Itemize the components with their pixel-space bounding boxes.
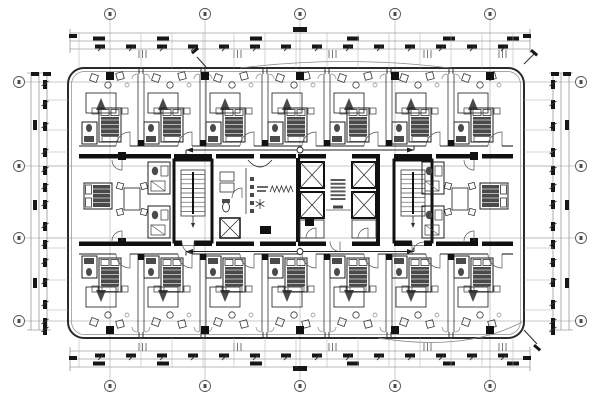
pillow (111, 110, 119, 116)
stair-arrow-head (191, 223, 195, 228)
dimension-text-blob (343, 45, 353, 49)
chair (468, 182, 475, 189)
shaft-block (200, 140, 206, 146)
column (201, 326, 209, 334)
side-table (353, 312, 359, 318)
lamp (497, 83, 501, 87)
toilet-tank (222, 199, 230, 203)
column (296, 72, 304, 80)
dimension-text-blob (95, 354, 105, 358)
dimension-text-blob (405, 45, 415, 49)
chair (116, 182, 123, 189)
vanity (84, 258, 94, 264)
curtain-arc (145, 74, 150, 79)
duvet (93, 185, 110, 207)
facade-arc-bottom (378, 322, 522, 342)
nightstand (494, 286, 500, 292)
elevator-bank-2 (352, 162, 376, 238)
grid-bubble (200, 381, 211, 392)
dimension-text-blob (343, 354, 353, 358)
lamp (187, 313, 191, 317)
shaft-block (305, 218, 314, 226)
toilet (210, 124, 216, 132)
left-corner-suite (84, 160, 170, 241)
shaft-block (260, 226, 271, 234)
bathroom (144, 256, 159, 278)
chair (426, 72, 435, 81)
grid-bubble (14, 316, 25, 327)
dimension-text-blob (250, 362, 262, 366)
dimension-text-blob (565, 200, 569, 210)
elevator-bank-1 (300, 162, 324, 238)
core-wall (79, 154, 118, 159)
chair (462, 74, 471, 83)
toilet (426, 211, 432, 219)
lamp (125, 83, 129, 87)
grid-bubble-glyph (580, 164, 583, 168)
dimension-text-blob (157, 362, 169, 366)
pillow (473, 110, 481, 116)
note-line (331, 183, 346, 185)
side-table (167, 312, 173, 318)
top-guest-room-1 (82, 72, 130, 146)
dumbwaiter (220, 218, 240, 238)
core-wall (482, 242, 513, 247)
shaft-block (448, 254, 454, 260)
bathroom (392, 256, 407, 278)
grid-bubble (576, 161, 587, 172)
chair (444, 182, 451, 189)
grid-bubble-glyph (204, 12, 207, 16)
dimension-text-blob (33, 200, 37, 210)
curtain-arc (132, 327, 137, 332)
vanity (208, 136, 218, 142)
dimension-text-blob (347, 37, 359, 41)
curtain-arc (318, 74, 323, 79)
shaft-block (138, 254, 144, 260)
chair (214, 318, 223, 327)
grid-bubble-glyph (580, 236, 583, 240)
dimension-text-blob (436, 45, 446, 49)
core-wall (126, 242, 171, 247)
curtain-arc (442, 327, 447, 332)
toilet (86, 268, 92, 276)
right-stairwell (394, 160, 432, 254)
dimension-text-blob (126, 354, 136, 358)
dimension-text-blob (250, 37, 262, 41)
chair (90, 318, 99, 327)
column (486, 326, 494, 334)
vanity (456, 136, 466, 142)
door-arc (306, 228, 316, 238)
side-table (415, 82, 421, 88)
shower-line (151, 181, 165, 191)
door-arc (464, 160, 474, 170)
curtain-arc (256, 74, 261, 79)
pillow (86, 198, 92, 207)
dimension-text-blob (530, 49, 538, 56)
toilet (334, 124, 340, 132)
curtain-arc (455, 327, 460, 332)
toilet (426, 167, 432, 175)
dining-table (124, 188, 140, 210)
pillow (349, 110, 357, 116)
bathroom (330, 256, 345, 278)
dimension-text-blob (312, 45, 322, 49)
chair (240, 72, 249, 81)
grid-bubble-glyph (18, 80, 21, 84)
nightstand (184, 286, 190, 292)
bathroom (330, 122, 345, 144)
closet (220, 172, 234, 181)
pillow (86, 185, 92, 194)
grid-bubble-glyph (489, 384, 492, 388)
dimension-text-blob (565, 278, 569, 288)
dimension-text-blob (31, 72, 39, 76)
pillow (411, 110, 419, 116)
sink (435, 166, 442, 176)
duvet (482, 185, 499, 207)
core-wall (79, 242, 118, 247)
core-wall (394, 154, 432, 159)
column-dash (250, 193, 254, 197)
curtain-arc (145, 327, 150, 332)
column-dash (250, 201, 254, 205)
curtain-arc (256, 327, 261, 332)
note-label (257, 190, 266, 192)
lamp (373, 313, 377, 317)
lamp (497, 313, 501, 317)
curtain-arc (380, 74, 385, 79)
vanity (270, 136, 280, 142)
chair (400, 74, 409, 83)
side-table (415, 312, 421, 318)
bathroom (268, 256, 283, 278)
note-label (333, 206, 343, 209)
pillow (287, 110, 295, 116)
shaft-block (324, 140, 330, 146)
door-opening (412, 240, 424, 246)
grid-bubble (485, 9, 496, 20)
service-room (220, 160, 293, 238)
core-wall (298, 154, 326, 159)
top-guest-room-3 (206, 72, 254, 146)
lamp (435, 83, 439, 87)
bathroom (206, 122, 221, 144)
dimension-text-blob (498, 354, 508, 358)
suite-bathroom (148, 162, 170, 194)
pillow (411, 260, 419, 266)
sink (161, 166, 168, 176)
pillow (101, 110, 109, 116)
dimension-text-blob (281, 354, 291, 358)
bottom-guest-room-3 (206, 254, 254, 328)
foot-bench (474, 137, 490, 142)
curtain-arc (442, 74, 447, 79)
side-table (353, 82, 359, 88)
core-wall (436, 242, 474, 247)
foot-bench (226, 137, 242, 142)
dimension-text-blob (551, 72, 559, 76)
arrow-node (297, 249, 303, 255)
chair (116, 72, 125, 81)
side-table (477, 312, 483, 318)
dimension-text-blob (523, 34, 531, 38)
core-wall (352, 242, 380, 247)
dimension-text-blob (533, 344, 541, 351)
shaft-block (448, 140, 454, 146)
foot-bench (412, 137, 428, 142)
grid-bubble-glyph (109, 12, 112, 16)
note-line (331, 198, 346, 200)
bed (84, 183, 112, 209)
toilet (334, 268, 340, 276)
top-guest-room-4 (268, 72, 316, 146)
dimension-text-blob (405, 354, 415, 358)
corridor-arrow-top (186, 146, 414, 154)
core-wall (260, 154, 296, 159)
dimension-text-blob (250, 354, 260, 358)
bathroom (82, 256, 97, 278)
grid-bubble (105, 9, 116, 20)
toilet (152, 167, 158, 175)
chair (276, 318, 285, 327)
chair (468, 208, 475, 215)
dimension-text-blob (312, 354, 322, 358)
toilet (396, 268, 402, 276)
toilet (396, 124, 402, 132)
core-wall (174, 154, 212, 159)
nightstand (308, 286, 314, 292)
vanity (394, 258, 404, 264)
toilet (272, 268, 278, 276)
toilet (86, 124, 92, 132)
bottom-guest-room-7 (454, 254, 502, 328)
nightstand (308, 108, 314, 114)
dining-table (452, 188, 468, 210)
dimension-text-blob (33, 120, 37, 130)
foot-bench (350, 137, 366, 142)
dimension-text-blob (467, 45, 477, 49)
toilet (210, 268, 216, 276)
chair (116, 208, 123, 215)
vanity (456, 258, 466, 264)
grid-bubble (576, 233, 587, 244)
column (106, 72, 114, 80)
toilet (272, 124, 278, 132)
column-dash (250, 209, 254, 213)
bathroom (268, 122, 283, 144)
column-dash (250, 185, 254, 189)
bathroom (454, 256, 469, 278)
chair (338, 318, 347, 327)
foot-bench (164, 137, 180, 142)
dimension-strip-right (524, 72, 573, 335)
column (106, 326, 114, 334)
grid-bubble (14, 77, 25, 88)
elevator-shaft (352, 192, 376, 218)
dimension-strip-left (27, 72, 68, 335)
bottom-guest-room-1 (82, 254, 130, 328)
lamp (435, 313, 439, 317)
grid-bubble (200, 9, 211, 20)
bathroom (144, 122, 159, 144)
pillow (421, 110, 429, 116)
dimension-text-blob (443, 362, 455, 366)
suite-bathroom (148, 206, 170, 238)
grid-bubble (295, 381, 306, 392)
bottom-guest-room-6 (392, 254, 440, 328)
nightstand (432, 108, 438, 114)
grid-bubble-glyph (18, 236, 21, 240)
nightstand (246, 108, 252, 114)
nightstand (122, 108, 128, 114)
curtain-arc (455, 74, 460, 79)
side-table (229, 82, 235, 88)
pillow (173, 110, 181, 116)
side-table (167, 82, 173, 88)
pillow (225, 110, 233, 116)
dimension-text-blob (293, 27, 307, 32)
grid-bubble-glyph (299, 384, 302, 388)
core-wall (352, 154, 380, 159)
pillow (101, 260, 109, 266)
dimension-text-blob (563, 72, 571, 76)
pillow (163, 110, 171, 116)
dimension-text-blob (157, 37, 169, 41)
dimension-text-blob (436, 354, 446, 358)
pillow (287, 260, 295, 266)
curtain-arc (132, 74, 137, 79)
column (391, 72, 399, 80)
lamp (125, 313, 129, 317)
grid-bubble (576, 77, 587, 88)
dimension-text-blob (565, 120, 569, 130)
core-wall (216, 154, 254, 159)
shaft-block (386, 140, 392, 146)
curtain-arc (269, 74, 274, 79)
pillow (349, 260, 357, 266)
core-wall (436, 154, 474, 159)
nightstand (184, 108, 190, 114)
dimension-text-blob (467, 354, 477, 358)
dimension-text-blob (281, 45, 291, 49)
bathroom (392, 122, 407, 144)
core-wall (482, 154, 513, 159)
curtain-arc (331, 327, 336, 332)
chair (276, 74, 285, 83)
lamp (249, 313, 253, 317)
grid-bubble (295, 9, 306, 20)
lamp (311, 83, 315, 87)
dimension-text-blob (374, 354, 384, 358)
grid-bubble (14, 161, 25, 172)
grid-bubble (390, 381, 401, 392)
vanity (270, 258, 280, 264)
dimension-text-blob (498, 45, 508, 49)
stair-arrow-head (411, 223, 415, 228)
vanity (146, 258, 156, 264)
grid-bubble-glyph (394, 12, 397, 16)
grid-bubble (576, 316, 587, 327)
pillow (359, 110, 367, 116)
note-line (331, 190, 346, 192)
door-arc (358, 228, 368, 238)
core-wall (126, 154, 171, 159)
nightstand (370, 286, 376, 292)
dimension-text-blob (523, 356, 531, 360)
shower-line (151, 225, 165, 235)
shaft-block (262, 140, 268, 146)
column (391, 326, 399, 334)
lamp (187, 83, 191, 87)
bottom-guest-room-2 (144, 254, 192, 328)
side-table (291, 82, 297, 88)
chair (462, 318, 471, 327)
side-table (477, 82, 483, 88)
left-stairwell (174, 160, 212, 254)
curtain-arc (194, 327, 199, 332)
note-line (331, 179, 346, 181)
grid-bubble (105, 381, 116, 392)
door-arc (112, 160, 122, 170)
pillow (501, 185, 507, 194)
grid-bubble-glyph (109, 384, 112, 388)
dimension-text-blob (157, 45, 167, 49)
dimension-text-blob (188, 354, 198, 358)
grid-bubble (14, 233, 25, 244)
arrow-head (186, 148, 193, 153)
dimension-text-blob (347, 362, 359, 366)
louver-zigzag (270, 186, 293, 192)
vanity (332, 136, 342, 142)
curtain-arc (194, 74, 199, 79)
top-guest-room-6 (392, 72, 440, 146)
dimension-text-blob (126, 45, 136, 49)
dimension-text-blob (293, 366, 307, 371)
nightstand (122, 286, 128, 292)
arrow-head (407, 148, 414, 153)
floor-plan-page (0, 0, 600, 400)
bathroom (206, 256, 221, 278)
dimension-text-blob (43, 72, 51, 76)
grid-bubble-glyph (204, 384, 207, 388)
bottom-guest-room-5 (330, 254, 378, 328)
column (296, 326, 304, 334)
grid-bubble-glyph (18, 164, 21, 168)
door-opening (182, 240, 194, 246)
grid-bubble (485, 381, 496, 392)
pillow (163, 260, 171, 266)
closet (220, 183, 234, 192)
dimension-text-blob (250, 45, 260, 49)
curtain-arc (380, 327, 385, 332)
lamp (249, 83, 253, 87)
toilet (458, 268, 464, 276)
foot-bench (288, 137, 304, 142)
pillow (225, 260, 233, 266)
toilet (458, 124, 464, 132)
column (201, 72, 209, 80)
shaft-block (386, 254, 392, 260)
door-arc (232, 188, 242, 198)
core-wall (216, 242, 254, 247)
stair-rail (412, 172, 414, 214)
dimension-text-blob (219, 45, 229, 49)
dimension-text-blob (69, 34, 77, 38)
stair-rail (192, 172, 194, 214)
column-dash (250, 177, 254, 181)
